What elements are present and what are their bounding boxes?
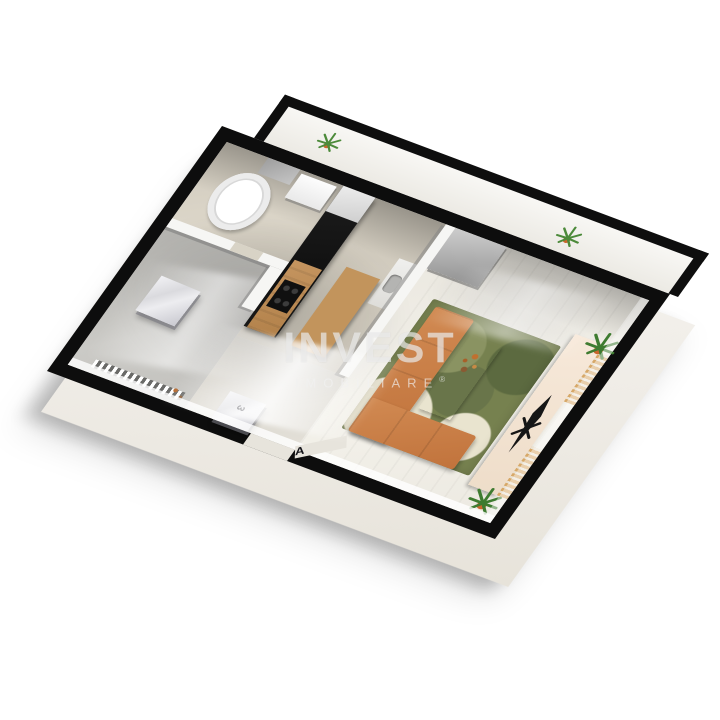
balcony-plant-icon — [548, 221, 590, 253]
floor-plan-stage: A 3 INVEST IMOBILIARE® — [0, 0, 720, 720]
balcony-plant-icon — [310, 127, 349, 157]
